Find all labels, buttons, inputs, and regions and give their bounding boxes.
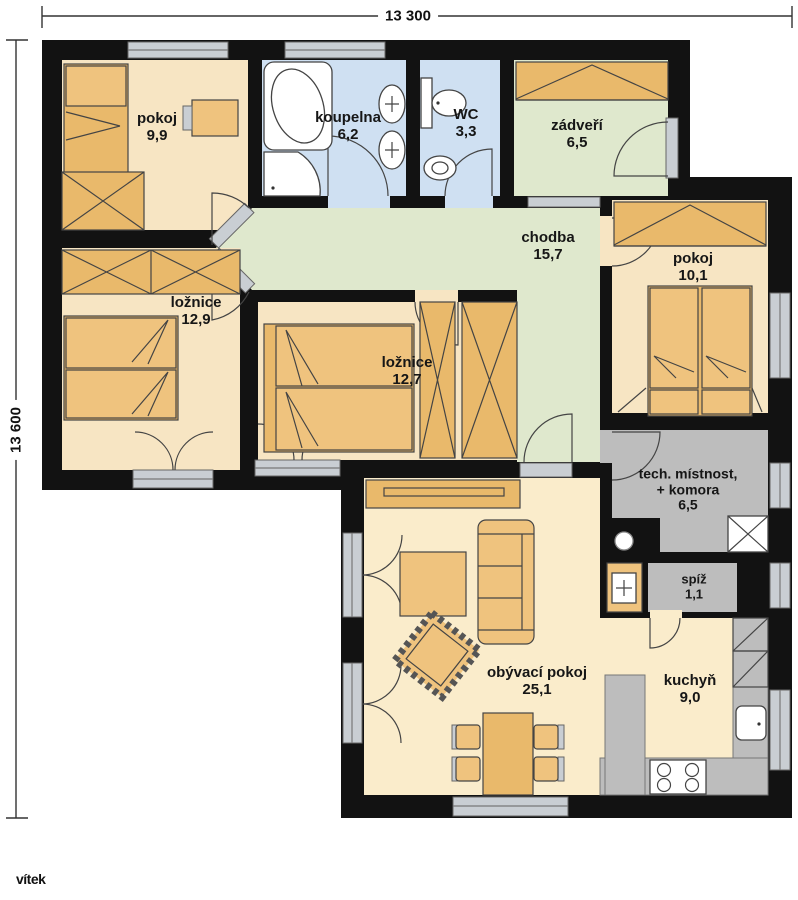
closet: [614, 202, 766, 246]
room-label-pokoj-1: pokoj9,9: [137, 111, 177, 145]
wardrobe: [62, 172, 144, 230]
stove: [650, 760, 706, 794]
freezer: [607, 563, 642, 612]
room-label-zadveri: zádveří6,5: [551, 118, 603, 152]
room-label-obyvaci: obývací pokoj25,1: [487, 665, 587, 699]
dimension-width-label: 13 300: [378, 8, 438, 25]
room-label-pokoj-2: pokoj10,1: [673, 251, 713, 285]
room-label-loznice-1: ložnice12,9: [171, 295, 222, 329]
dining-table: [483, 713, 533, 795]
sideboard: [366, 480, 520, 508]
watermark: vítek: [16, 871, 45, 887]
floor-plan: pokoj9,9 koupelna6,2 WC3,3 zádveří6,5 ch…: [0, 0, 798, 900]
floor-plan-canvas: [0, 0, 798, 900]
room-label-wc: WC3,3: [454, 107, 479, 141]
room-label-koupelna: koupelna6,2: [315, 110, 381, 144]
wardrobe: [420, 302, 517, 458]
boiler-icon: [615, 532, 633, 550]
entrance-door-leaf: [666, 118, 678, 178]
dimension-height-label: 13 600: [8, 400, 25, 460]
room-label-spiz: spíž1,1: [681, 572, 706, 601]
sink: [736, 706, 766, 740]
room-label-tech: tech. místnost,+ komora6,5: [639, 466, 738, 513]
wardrobe: [62, 250, 240, 294]
room-label-kuchyn: kuchyň9,0: [664, 673, 717, 707]
room-label-chodba: chodba15,7: [521, 230, 574, 264]
coffee-table: [400, 552, 466, 616]
closet: [516, 62, 668, 100]
double-bed: [64, 316, 178, 420]
room-label-loznice-2: ložnice12,7: [382, 355, 433, 389]
sofa: [478, 520, 534, 644]
